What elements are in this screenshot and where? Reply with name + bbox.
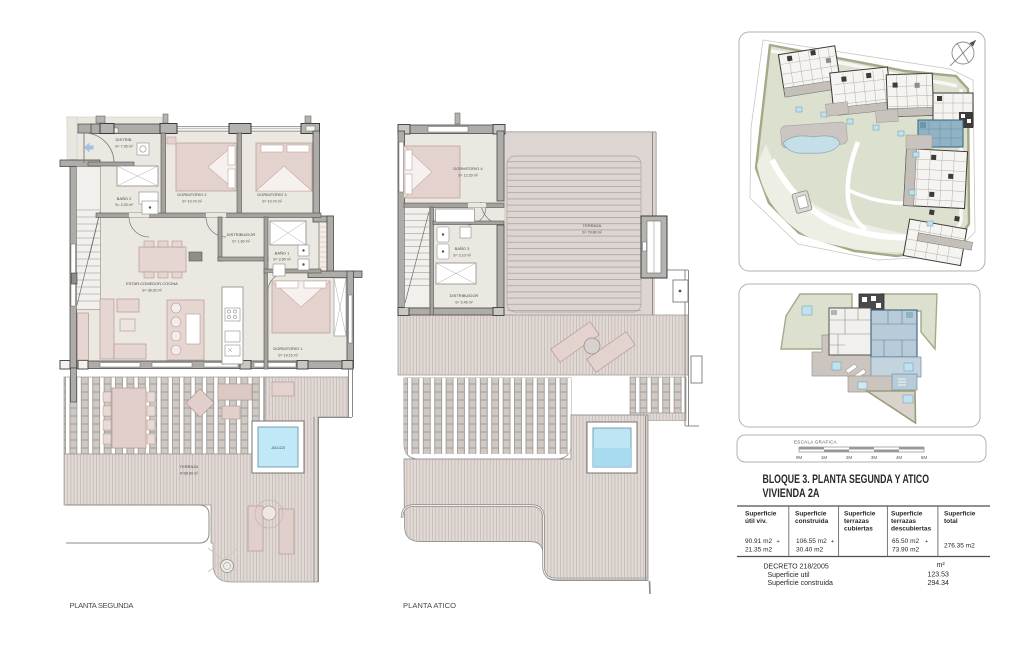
svg-text:1M: 1M xyxy=(821,455,828,460)
svg-text:30.40 m2: 30.40 m2 xyxy=(796,547,823,554)
svg-text:terrazas: terrazas xyxy=(844,518,869,525)
svg-text:útil viv.: útil viv. xyxy=(745,518,767,525)
svg-text:73.90 m2: 73.90 m2 xyxy=(892,547,919,554)
svg-text:VIVIENDA 2A: VIVIENDA 2A xyxy=(763,487,820,500)
svg-text:PLANTA SEGUNDA: PLANTA SEGUNDA xyxy=(70,601,135,610)
svg-text:TERRAZA: TERRAZA xyxy=(180,464,199,469)
svg-text:S= 7.95 m²: S= 7.95 m² xyxy=(115,145,133,149)
svg-text:276.35 m2: 276.35 m2 xyxy=(944,543,975,550)
svg-text:ESCALA GRAFICA: ESCALA GRAFICA xyxy=(794,440,837,445)
svg-text:+: + xyxy=(925,539,928,545)
svg-text:TERRAZA: TERRAZA xyxy=(583,223,602,228)
svg-text:Superficie: Superficie xyxy=(795,511,827,518)
svg-text:106.55 m2: 106.55 m2 xyxy=(796,538,827,545)
svg-text:4M: 4M xyxy=(896,455,903,460)
svg-text:terrazas: terrazas xyxy=(891,518,916,525)
svg-text:Superficie util: Superficie util xyxy=(768,572,810,579)
svg-text:BAÑO 2: BAÑO 2 xyxy=(117,196,132,201)
svg-text:21.35 m2: 21.35 m2 xyxy=(745,547,772,554)
svg-text:5M: 5M xyxy=(921,455,928,460)
svg-text:DORMITORIO 1: DORMITORIO 1 xyxy=(273,346,303,351)
svg-text:Superficie: Superficie xyxy=(844,511,876,518)
svg-text:BAÑO 3: BAÑO 3 xyxy=(455,246,470,251)
svg-text:+: + xyxy=(831,539,834,545)
svg-text:123.53: 123.53 xyxy=(928,572,950,579)
svg-text:S= 3.25 m²: S= 3.25 m² xyxy=(115,203,133,207)
svg-text:S= 79.80 m²: S= 79.80 m² xyxy=(582,231,602,235)
svg-text:S= 38.30 m²: S= 38.30 m² xyxy=(142,289,162,293)
svg-text:DORMITORIO 3: DORMITORIO 3 xyxy=(257,192,287,197)
svg-text:BLOQUE 3. PLANTA SEGUNDA Y ATI: BLOQUE 3. PLANTA SEGUNDA Y ATICO xyxy=(763,473,930,486)
svg-text:descubiertas: descubiertas xyxy=(891,526,931,533)
svg-text:Superficie: Superficie xyxy=(944,511,976,518)
svg-text:S= 19.15 m²: S= 19.15 m² xyxy=(278,354,298,358)
svg-text:DISTRIBUIDOR: DISTRIBUIDOR xyxy=(227,232,256,237)
svg-text:JACUZZI: JACUZZI xyxy=(271,446,285,450)
svg-text:total: total xyxy=(944,518,958,525)
svg-text:Superficie: Superficie xyxy=(745,511,777,518)
svg-text:construida: construida xyxy=(795,518,829,525)
svg-text:S= 5.45 m²: S= 5.45 m² xyxy=(455,301,473,305)
svg-text:DORMITORIO 4: DORMITORIO 4 xyxy=(453,166,483,171)
svg-text:2M: 2M xyxy=(846,455,853,460)
svg-text:S= 12.20 m²: S= 12.20 m² xyxy=(458,174,478,178)
svg-text:DISTRIB.: DISTRIB. xyxy=(116,137,133,142)
svg-text:294.34: 294.34 xyxy=(928,580,950,587)
svg-text:BAÑO 1: BAÑO 1 xyxy=(275,251,290,256)
svg-text:90.91 m2: 90.91 m2 xyxy=(745,538,772,545)
svg-text:3M: 3M xyxy=(871,455,878,460)
svg-text:S= 1.60 m²: S= 1.60 m² xyxy=(232,240,250,244)
svg-text:DECRETO 218/2005: DECRETO 218/2005 xyxy=(764,564,829,571)
svg-text:S= 3.10 m²: S= 3.10 m² xyxy=(453,254,471,258)
svg-text:m²: m² xyxy=(937,562,946,569)
svg-text:+: + xyxy=(777,539,780,545)
svg-text:ESTAR.COMEDOR.COCINA: ESTAR.COMEDOR.COCINA xyxy=(126,281,178,286)
svg-text:Superficie construida: Superficie construida xyxy=(768,580,833,587)
svg-text:DISTRIBUIDOR: DISTRIBUIDOR xyxy=(450,293,479,298)
svg-text:cubiertas: cubiertas xyxy=(844,526,873,533)
svg-text:S=65.80 m²: S=65.80 m² xyxy=(180,472,199,476)
svg-text:S= 10.70 m²: S= 10.70 m² xyxy=(262,200,282,204)
svg-text:S= 3.90 m²: S= 3.90 m² xyxy=(273,258,291,262)
svg-text:S= 10.70 m²: S= 10.70 m² xyxy=(182,200,202,204)
svg-text:DORMITORIO 2: DORMITORIO 2 xyxy=(177,192,207,197)
svg-text:0M: 0M xyxy=(796,455,803,460)
svg-text:65.50 m2: 65.50 m2 xyxy=(892,538,919,545)
svg-text:PLANTA ATICO: PLANTA ATICO xyxy=(403,601,456,610)
svg-text:Superficie: Superficie xyxy=(891,511,923,518)
